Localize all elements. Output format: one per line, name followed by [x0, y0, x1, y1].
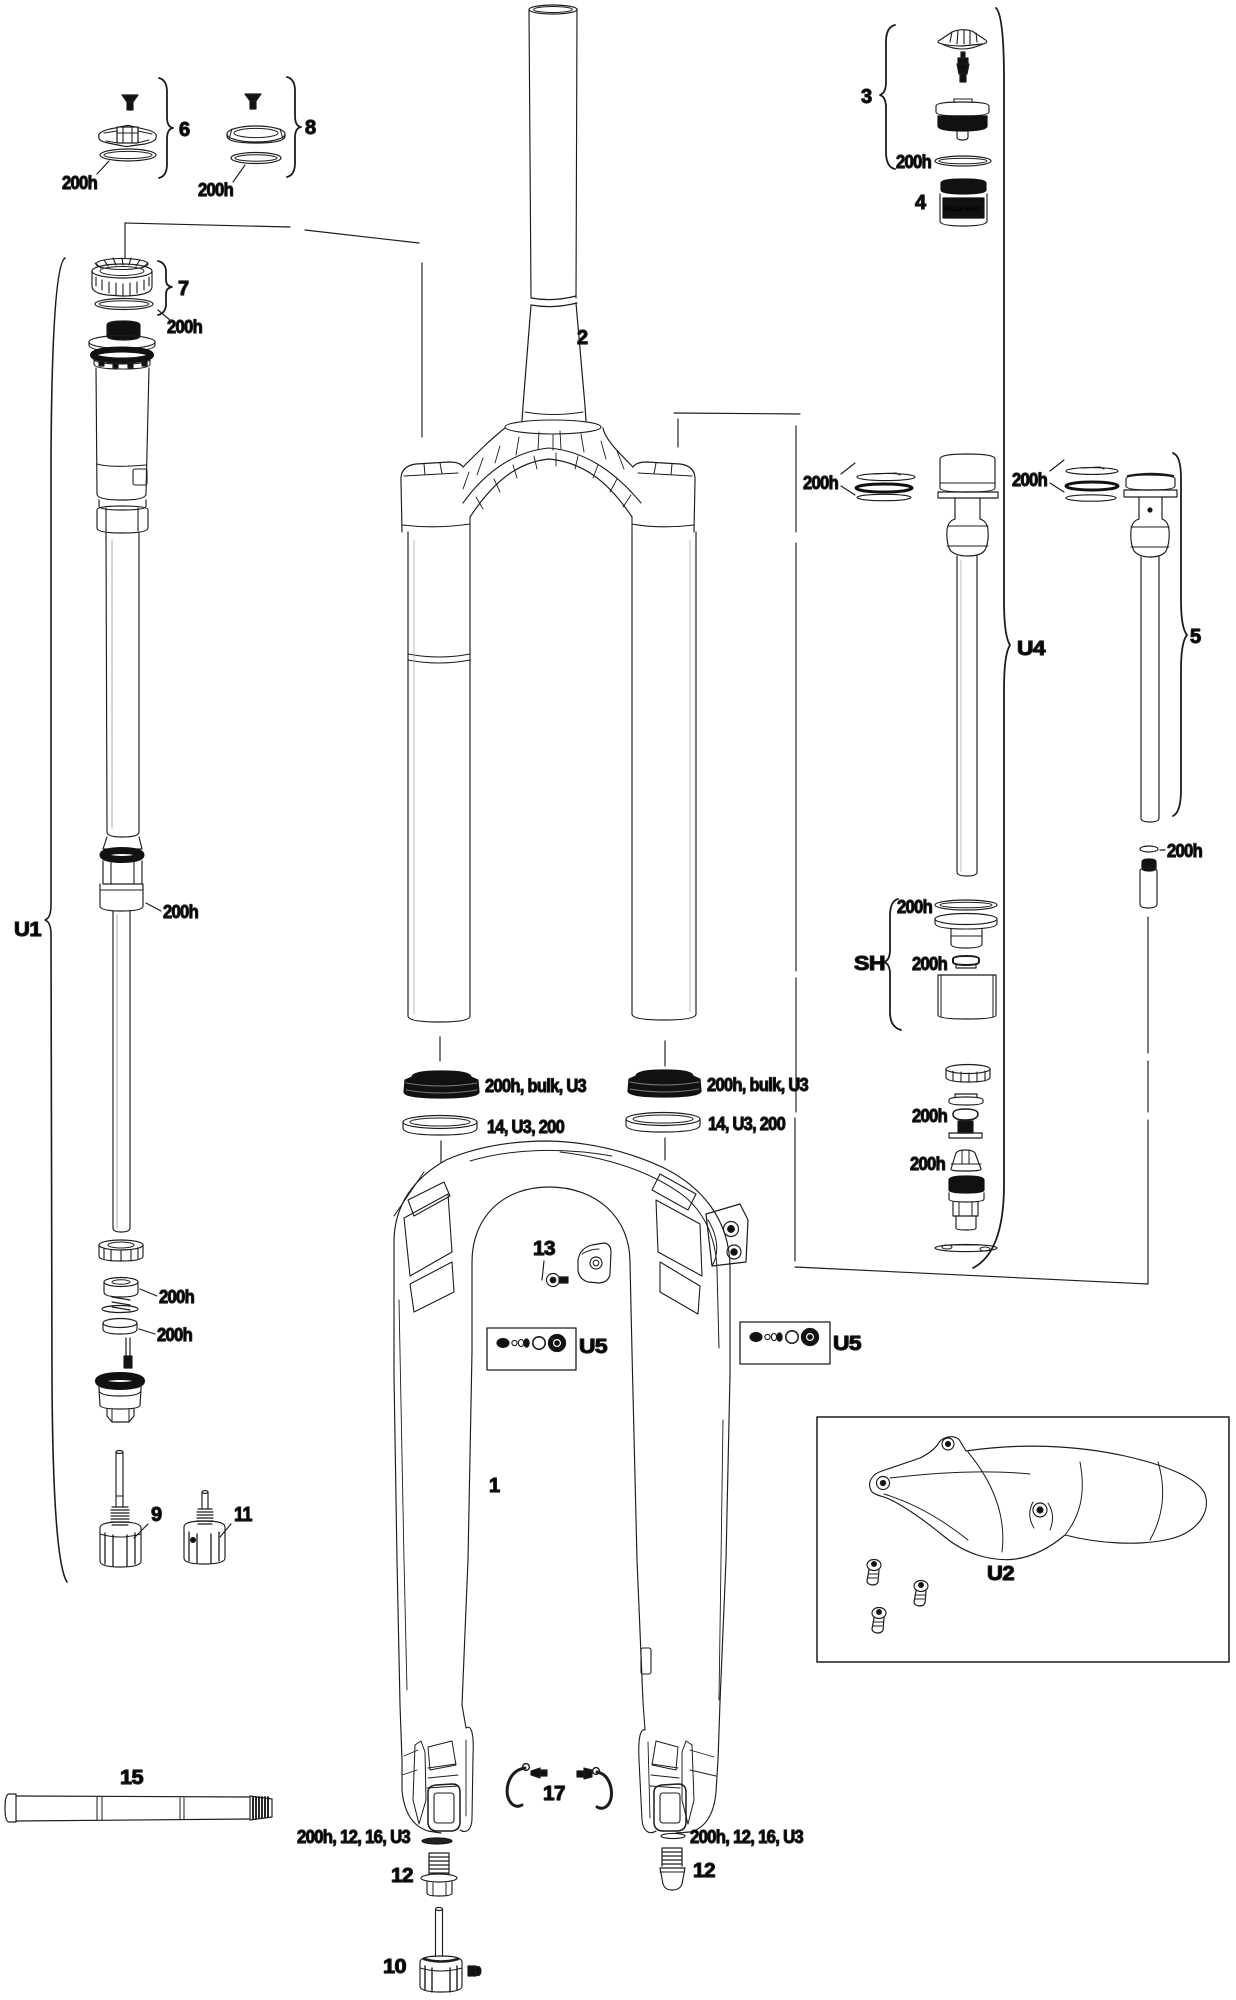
svg-text:200h: 200h [62, 172, 97, 193]
svg-text:SH: SH [854, 953, 885, 975]
svg-text:U1: U1 [14, 919, 41, 941]
svg-text:12: 12 [693, 1860, 715, 1882]
svg-text:8: 8 [305, 117, 316, 139]
svg-text:200h, 12, 16, U3: 200h, 12, 16, U3 [297, 1826, 410, 1847]
svg-text:ROCKSHOX: ROCKSHOX [945, 204, 982, 213]
svg-text:3: 3 [861, 86, 872, 108]
svg-text:1: 1 [489, 1475, 500, 1497]
svg-text:200h: 200h [1167, 840, 1202, 861]
svg-text:14, U3, 200: 14, U3, 200 [487, 1116, 564, 1137]
svg-text:U2: U2 [987, 1563, 1014, 1585]
svg-text:2: 2 [577, 327, 588, 349]
svg-text:10: 10 [383, 1956, 406, 1978]
svg-text:200h: 200h [896, 151, 931, 172]
svg-text:14, U3, 200: 14, U3, 200 [708, 1113, 785, 1134]
svg-text:13: 13 [533, 1238, 555, 1260]
svg-text:U4: U4 [1017, 638, 1047, 660]
svg-text:200h: 200h [167, 316, 202, 337]
svg-text:4: 4 [915, 192, 927, 214]
svg-text:200h: 200h [157, 1324, 192, 1345]
svg-text:200h: 200h [159, 1286, 194, 1307]
svg-text:200h, 12, 16, U3: 200h, 12, 16, U3 [690, 1826, 803, 1847]
svg-text:200h: 200h [163, 901, 198, 922]
svg-text:12: 12 [391, 1865, 413, 1887]
svg-text:200h, bulk, U3: 200h, bulk, U3 [485, 1075, 586, 1096]
svg-text:6: 6 [179, 119, 190, 141]
svg-text:200h: 200h [897, 896, 932, 917]
svg-text:200h: 200h [912, 953, 947, 974]
svg-text:200h: 200h [803, 472, 838, 493]
svg-text:5: 5 [1190, 626, 1201, 648]
svg-text:11: 11 [234, 1504, 252, 1526]
svg-text:200h: 200h [198, 179, 233, 200]
svg-text:9: 9 [151, 1504, 162, 1526]
svg-text:200h: 200h [910, 1153, 945, 1174]
svg-text:200h: 200h [1012, 469, 1047, 490]
svg-text:17: 17 [543, 1783, 565, 1805]
svg-text:U5: U5 [833, 1333, 861, 1355]
svg-text:U5: U5 [579, 1336, 607, 1358]
svg-text:200h, bulk, U3: 200h, bulk, U3 [707, 1074, 808, 1095]
svg-text:15: 15 [120, 1767, 143, 1789]
svg-text:200h: 200h [912, 1105, 947, 1126]
svg-text:7: 7 [178, 278, 189, 300]
